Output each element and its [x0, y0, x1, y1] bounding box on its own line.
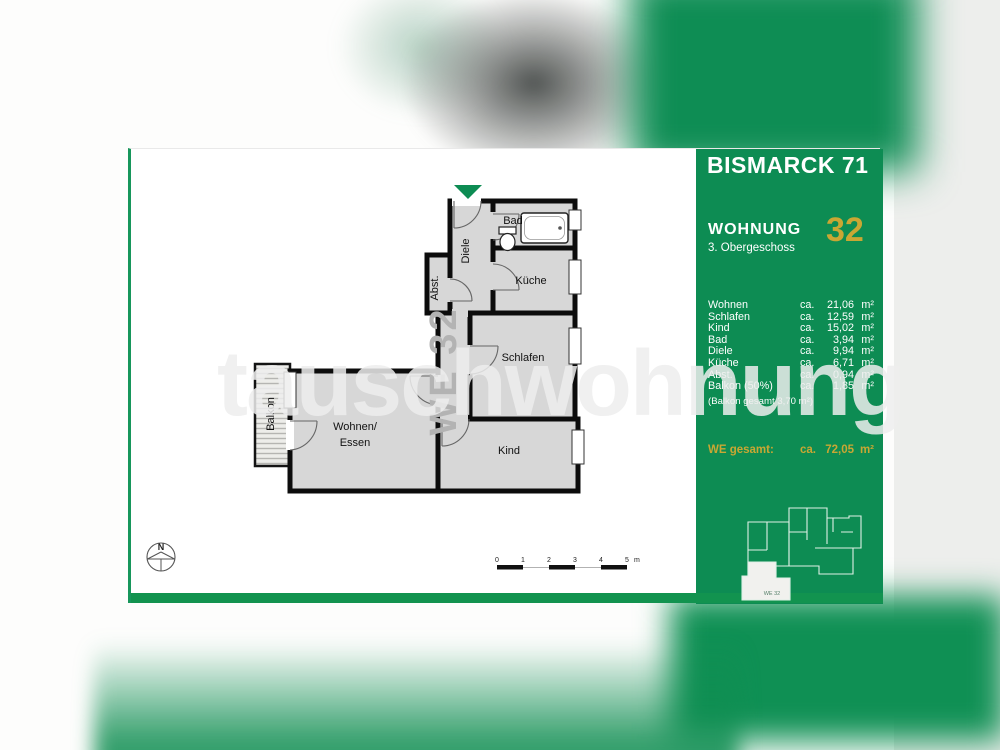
compass: N: [141, 535, 181, 575]
area-row: Wohnen ca. 21,06 m²: [708, 300, 874, 312]
screenshot-stage: Bad Küche Schlafen Kind Wohnen/ Essen Di…: [0, 0, 1000, 750]
room-label: Küche: [708, 358, 800, 370]
approx-label: ca.: [800, 358, 821, 370]
approx-label: ca.: [800, 300, 821, 312]
building-inner-lines: [789, 508, 853, 548]
label-balkon: Balkon: [265, 397, 277, 431]
label-kueche: Küche: [515, 275, 546, 287]
area-value: 6,71: [821, 358, 854, 370]
unit-number: 32: [826, 211, 864, 250]
area-value: 1,85: [821, 381, 854, 393]
window-schlafen: [569, 328, 581, 364]
label-wohnen-2: Essen: [340, 437, 371, 449]
label-kind: Kind: [498, 445, 520, 457]
label-wohnen-1: Wohnen/: [333, 421, 378, 433]
window-kueche: [569, 260, 581, 294]
total-value: 72,05: [821, 444, 854, 456]
total-row: WE gesamt: ca. 72,05 m²: [708, 444, 874, 456]
scale-label-3: 3: [573, 557, 577, 564]
unit-heading: WOHNUNG: [708, 221, 801, 239]
approx-label: ca.: [800, 444, 821, 456]
approx-label: ca.: [800, 381, 821, 393]
building-outline-map: WE 32: [734, 502, 880, 601]
scale-label-0: 0: [495, 557, 499, 564]
highlighted-unit-label: WE 32: [764, 591, 781, 597]
scale-label-2: 2: [547, 557, 551, 564]
floorplan-drawing: Bad Küche Schlafen Kind Wohnen/ Essen Di…: [246, 177, 593, 509]
building-title: BISMARCK 71: [707, 152, 868, 179]
label-schlafen: Schlafen: [502, 352, 545, 364]
room-label: Wohnen: [708, 300, 800, 312]
background-green-band-bottom-right: [670, 596, 1000, 741]
window-kind: [572, 430, 584, 464]
area-row: Küche ca. 6,71 m²: [708, 358, 874, 370]
floor-label: 3. Obergeschoss: [708, 242, 795, 254]
label-abst: Abst.: [429, 275, 441, 300]
scale-unit-label: m: [634, 557, 640, 564]
area-unit: m²: [854, 358, 874, 370]
building-inner-lines-left: [748, 522, 767, 550]
area-row: Balkon (50%) ca. 1,85 m²: [708, 381, 874, 393]
area-unit: m²: [854, 381, 874, 393]
label-diele: Diele: [460, 238, 472, 263]
area-table: Wohnen ca. 21,06 m² Schlafen ca. 12,59 m…: [708, 300, 874, 393]
window-bad: [569, 210, 581, 230]
background-green-band-top: [630, 0, 918, 172]
balkon-note: (Balkon gesamt 3,70 m²): [708, 396, 813, 407]
compass-north-label: N: [158, 542, 165, 552]
floorplan-card: Bad Küche Schlafen Kind Wohnen/ Essen Di…: [128, 148, 880, 603]
label-bad: Bad: [503, 215, 523, 227]
toilet-icon: [499, 227, 516, 251]
background-gray-panel: [894, 0, 1000, 750]
area-value: 21,06: [821, 300, 854, 312]
scale-label-1: 1: [521, 557, 525, 564]
background-dark-blob: [396, 0, 661, 164]
total-unit: m²: [854, 444, 874, 456]
bathtub-icon: [521, 213, 568, 243]
total-label: WE gesamt:: [708, 444, 800, 456]
scale-label-5: 5: [625, 557, 629, 564]
background-green-fade-bottom: [94, 642, 739, 750]
building-block-right: [789, 508, 861, 574]
room-schlafen: [470, 313, 575, 419]
background-green-tint: [335, 0, 505, 118]
scale-bar: 0 1 2 3 4 5 m: [493, 553, 643, 575]
area-unit: m²: [854, 300, 874, 312]
scale-label-4: 4: [599, 557, 603, 564]
label-we32: WE 32: [423, 306, 465, 435]
window-wohnen-balkon: [284, 372, 296, 408]
room-label: Balkon (50%): [708, 381, 800, 393]
